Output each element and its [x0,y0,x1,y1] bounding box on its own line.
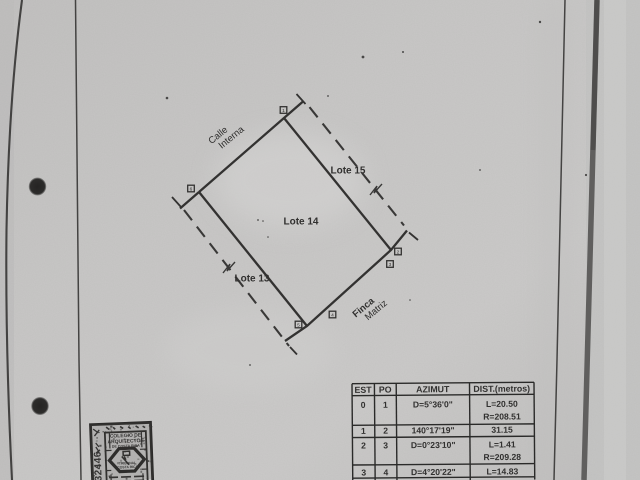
svg-text:2: 2 [383,426,388,436]
svg-text:5: 5 [297,322,300,328]
svg-text:2: 2 [397,249,400,255]
svg-text:6: 6 [190,186,193,192]
svg-text:1: 1 [282,108,285,114]
svg-text:4: 4 [331,312,334,318]
svg-text:R=208.51: R=208.51 [483,411,521,421]
svg-text:31.15: 31.15 [491,425,513,435]
svg-text:AZIMUT: AZIMUT [416,384,450,394]
svg-text:PO: PO [379,385,392,395]
svg-text:Lote 13: Lote 13 [234,274,269,285]
svg-text:D=4°20'22": D=4°20'22" [411,467,456,477]
svg-text:L=20.50: L=20.50 [486,399,518,409]
svg-text:D=0°23'10": D=0°23'10" [411,440,456,450]
svg-text:D=5°36'0": D=5°36'0" [413,399,453,409]
svg-text:Lote 14: Lote 14 [283,217,318,228]
svg-text:0: 0 [361,400,366,410]
svg-text:L=1.41: L=1.41 [489,439,516,449]
svg-text:4: 4 [383,467,388,477]
svg-text:Lote 15: Lote 15 [330,166,365,177]
svg-text:DIST.(metros): DIST.(metros) [473,384,530,394]
svg-text:3: 3 [361,467,366,477]
svg-text:L=14.83: L=14.83 [486,466,518,476]
svg-text:1: 1 [383,400,388,410]
svg-text:EST: EST [354,385,372,395]
svg-text:1: 1 [361,426,366,436]
svg-text:140°17'19": 140°17'19" [412,425,455,435]
svg-text:2: 2 [361,440,366,450]
svg-text:R=209.28: R=209.28 [483,452,521,462]
svg-text:3: 3 [383,440,388,450]
svg-text:3: 3 [389,262,392,268]
